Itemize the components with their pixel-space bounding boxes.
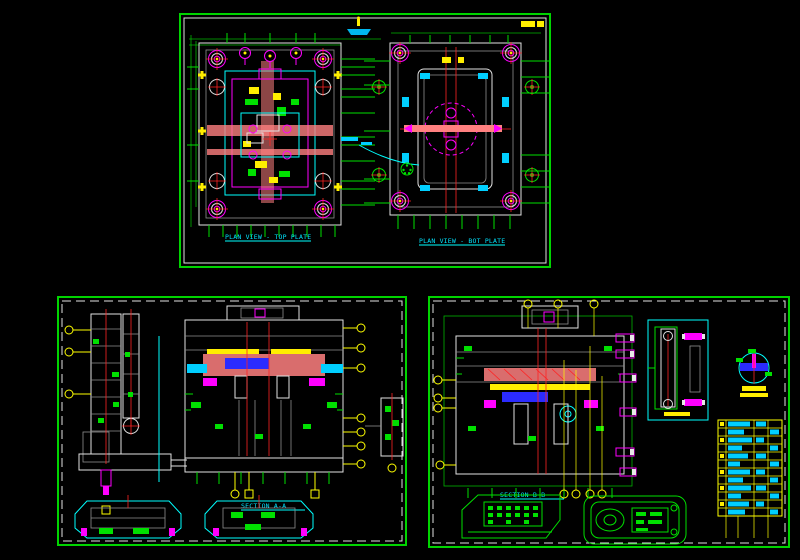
parts-table[interactable]	[718, 420, 782, 538]
revision-note	[521, 21, 544, 27]
caption-right-plan-view: PLAN VIEW - BOT PLATE	[419, 237, 505, 245]
sheet-section-views[interactable]: SECTION A-A	[57, 296, 407, 546]
sheet-inner-border	[62, 301, 402, 541]
bolt-circle-icon	[314, 172, 332, 190]
part-view-cyan-1[interactable]	[75, 495, 181, 538]
part-view-green-2[interactable]	[584, 496, 686, 544]
small-section-view[interactable]	[365, 393, 403, 472]
datum-symbol-icon	[347, 17, 371, 36]
bolt-circle-icon	[208, 78, 226, 96]
ejector-pin	[101, 470, 111, 495]
right-plan-view[interactable]	[364, 35, 549, 229]
sheet-section-detail[interactable]: SECTION B-B	[428, 296, 790, 548]
left-plan-view[interactable]	[187, 33, 375, 237]
guide-bushing-icon	[389, 42, 411, 64]
balloon-callout	[388, 464, 396, 472]
guide-bushing-icon	[206, 48, 228, 70]
bolt-head-icon	[371, 79, 387, 95]
side-pins	[616, 334, 636, 476]
bolt-circle-icon	[122, 417, 140, 435]
cad-canvas: PLAN VIEW - TOP PLATE PLAN VIEW - BOT PL…	[0, 0, 800, 560]
bolt-circle-icon	[208, 172, 226, 190]
balloon-callouts	[65, 326, 91, 398]
guide-bushing-icon	[500, 42, 522, 64]
detail-label	[740, 393, 768, 397]
guide-bushing-icon	[389, 190, 411, 212]
part-view-cyan-2[interactable]	[205, 495, 313, 538]
part-view-green-1[interactable]	[462, 495, 560, 538]
vent-symbol-icon	[401, 163, 413, 175]
bolt-head-icon	[524, 167, 540, 183]
detail-view-box[interactable]	[648, 320, 708, 420]
guide-bushing-icon	[500, 190, 522, 212]
side-section-view[interactable]	[65, 309, 187, 514]
main-section-view[interactable]: SECTION A-A	[185, 306, 365, 510]
round-detail-view[interactable]	[736, 349, 772, 397]
caption-section: SECTION A-A	[241, 502, 286, 510]
guide-bushing-icon	[312, 48, 334, 70]
caption-left-plan-view: PLAN VIEW - TOP PLATE	[225, 233, 311, 241]
bolt-circle-icon	[314, 78, 332, 96]
sheet-plan-views[interactable]: PLAN VIEW - TOP PLATE PLAN VIEW - BOT PL…	[179, 13, 551, 268]
main-section-view[interactable]: SECTION B-B	[434, 300, 636, 499]
detail-label	[664, 412, 690, 416]
guide-bushing-icon	[312, 198, 334, 220]
guide-bushing-icon	[206, 198, 228, 220]
balloon-callout	[102, 506, 110, 514]
